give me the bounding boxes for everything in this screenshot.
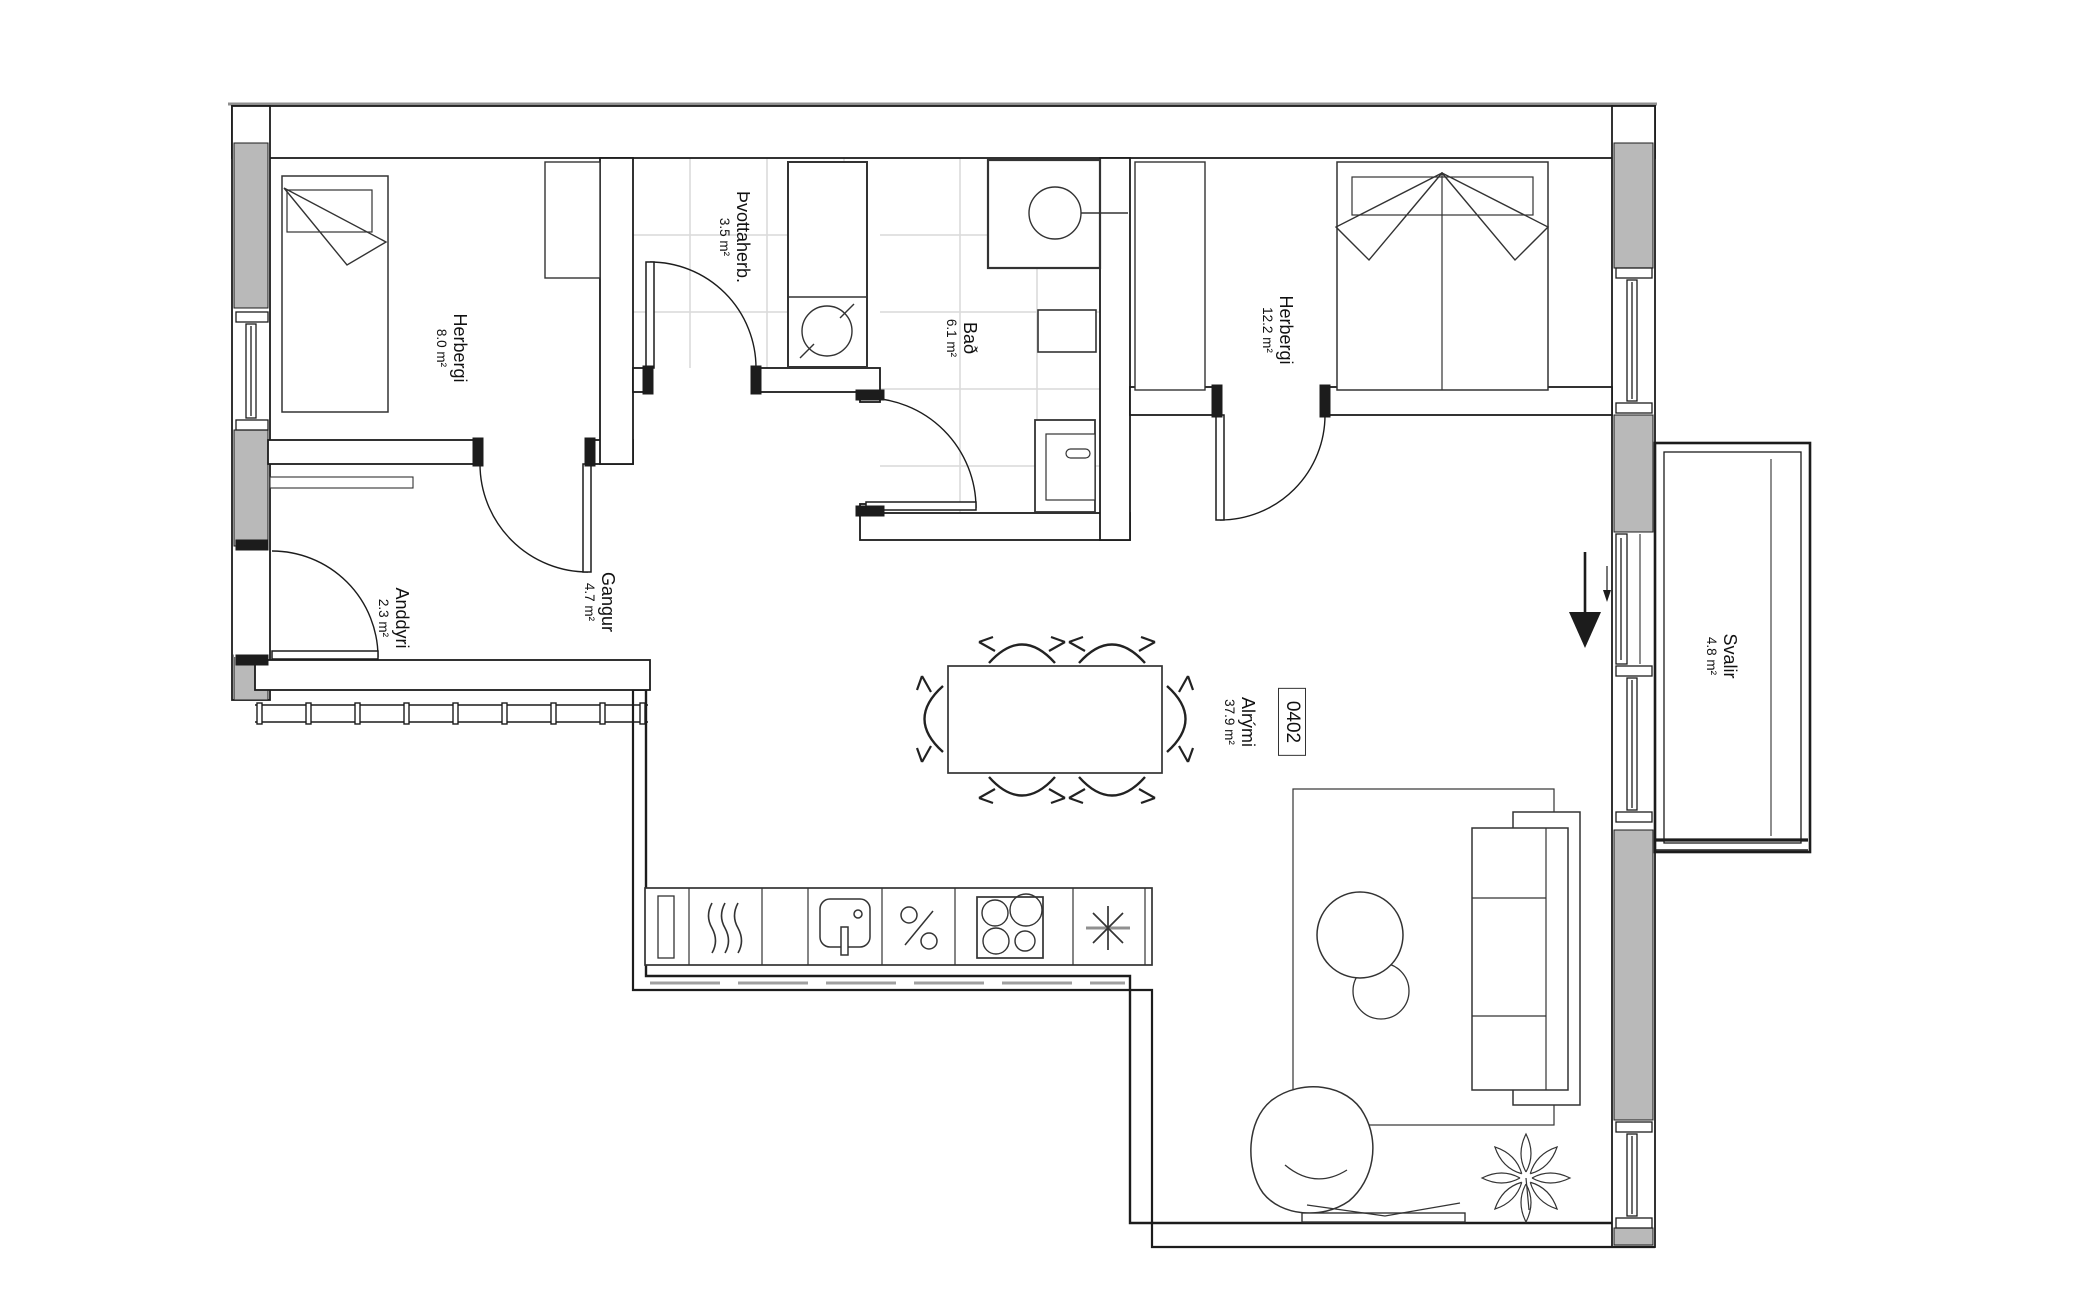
- bathroom-door: [856, 390, 976, 516]
- plant-icon: [1482, 1134, 1570, 1222]
- floor-plan-drawing: [0, 0, 2100, 1300]
- wardrobe-bedroom1-icon: [545, 162, 600, 278]
- entrance-arrow-icon: [1569, 552, 1601, 648]
- beanbag-chair-icon: [1251, 1087, 1373, 1213]
- bed-double-icon: [1336, 162, 1548, 390]
- label-entrance: Anddyri 2.3 m²: [376, 587, 412, 648]
- bedroom2-door: [1212, 385, 1330, 520]
- coffee-tables-icon: [1317, 892, 1409, 1019]
- label-laundry: Þvottaherb. 3.5 m²: [717, 191, 753, 283]
- wardrobe-bedroom2-icon: [1135, 162, 1205, 390]
- label-bedroom-1: Herbergi 8.0 m²: [434, 313, 470, 382]
- label-bedroom-2: Herbergi 12.2 m²: [1260, 295, 1296, 364]
- dining-table-icon: [948, 666, 1162, 773]
- label-balcony: Svalir 4.8 m²: [1704, 633, 1740, 678]
- sofa-icon: [1472, 812, 1580, 1105]
- railing: [255, 703, 648, 724]
- bathroom-shelf-icon: [1038, 310, 1096, 352]
- entry-zone-south-wall: [255, 660, 650, 690]
- entry-closet-icon: [270, 477, 413, 488]
- label-bathroom: Bað 6.1 m²: [944, 319, 980, 357]
- washing-machine-icon: [788, 162, 867, 367]
- floor-plan: Herbergi 8.0 m² Þvottaherb. 3.5 m² Bað 6…: [0, 0, 2100, 1300]
- bed-single-icon: [282, 176, 388, 412]
- kitchen-sink-icon: [820, 899, 870, 955]
- kitchen-counter: [645, 888, 1152, 965]
- toilet-icon: [1035, 420, 1095, 512]
- unit-number-badge: 0402: [1278, 688, 1306, 756]
- label-living: Alrými 37.9 m²: [1222, 697, 1258, 747]
- entry-door: [234, 540, 378, 665]
- bedroom1-door: [473, 438, 595, 572]
- label-hallway: Gangur 4.7 m²: [582, 572, 618, 632]
